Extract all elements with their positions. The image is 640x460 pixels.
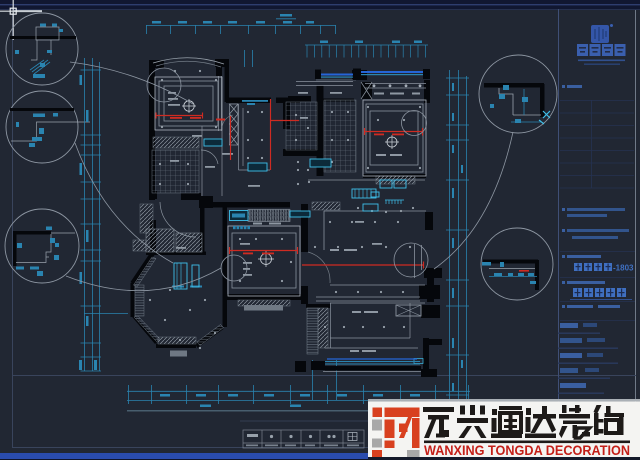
svg-text:WANXING TONGDA DECORATION: WANXING TONGDA DECORATION <box>424 443 630 458</box>
svg-text:-1803: -1803 <box>613 264 634 273</box>
